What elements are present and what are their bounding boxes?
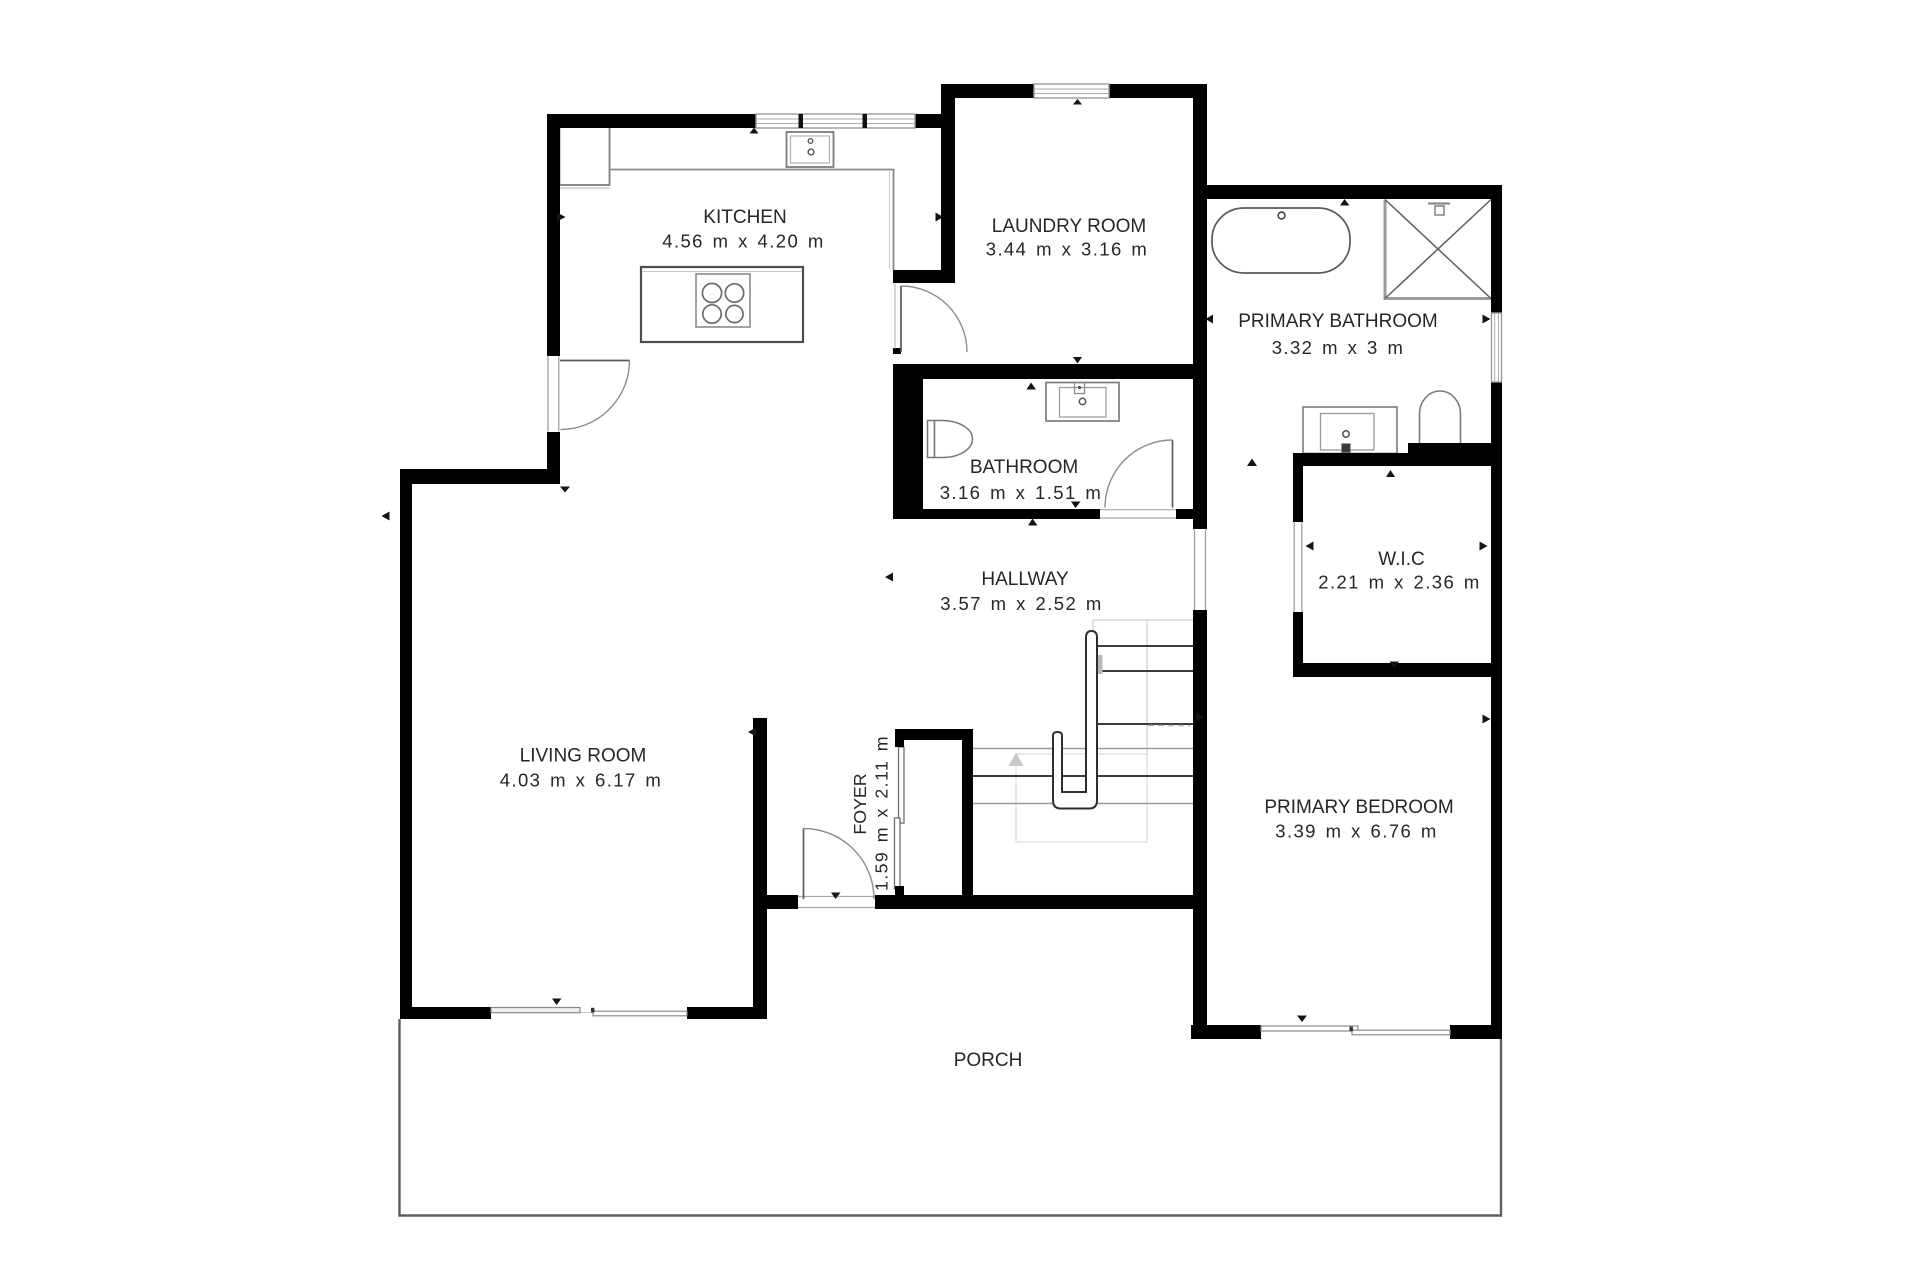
svg-text:4.03 m x 6.17 m: 4.03 m x 6.17 m bbox=[500, 770, 662, 791]
svg-text:3.57 m x 2.52 m: 3.57 m x 2.52 m bbox=[940, 593, 1102, 614]
svg-text:2.21 m x 2.36 m: 2.21 m x 2.36 m bbox=[1318, 572, 1480, 593]
svg-text:KITCHEN: KITCHEN bbox=[703, 207, 786, 228]
svg-text:3.16 m x 1.51 m: 3.16 m x 1.51 m bbox=[940, 482, 1102, 503]
svg-text:LIVING ROOM: LIVING ROOM bbox=[520, 746, 647, 767]
svg-text:HALLWAY: HALLWAY bbox=[981, 569, 1069, 590]
svg-text:W.I.C: W.I.C bbox=[1378, 549, 1424, 570]
svg-text:PRIMARY BEDROOM: PRIMARY BEDROOM bbox=[1264, 797, 1453, 818]
svg-text:BATHROOM: BATHROOM bbox=[970, 457, 1078, 478]
svg-text:1.59 m x 2.11 m: 1.59 m x 2.11 m bbox=[872, 735, 892, 891]
svg-text:3.32 m x 3 m: 3.32 m x 3 m bbox=[1272, 337, 1405, 358]
svg-text:3.39 m x 6.76 m: 3.39 m x 6.76 m bbox=[1275, 821, 1437, 842]
svg-text:PORCH: PORCH bbox=[954, 1050, 1023, 1071]
svg-text:FOYER: FOYER bbox=[850, 773, 870, 834]
svg-text:3.44 m x 3.16 m: 3.44 m x 3.16 m bbox=[986, 239, 1148, 260]
svg-text:4.56 m x 4.20 m: 4.56 m x 4.20 m bbox=[662, 231, 824, 252]
svg-text:LAUNDRY ROOM: LAUNDRY ROOM bbox=[992, 216, 1147, 237]
svg-text:PRIMARY BATHROOM: PRIMARY BATHROOM bbox=[1238, 311, 1438, 332]
